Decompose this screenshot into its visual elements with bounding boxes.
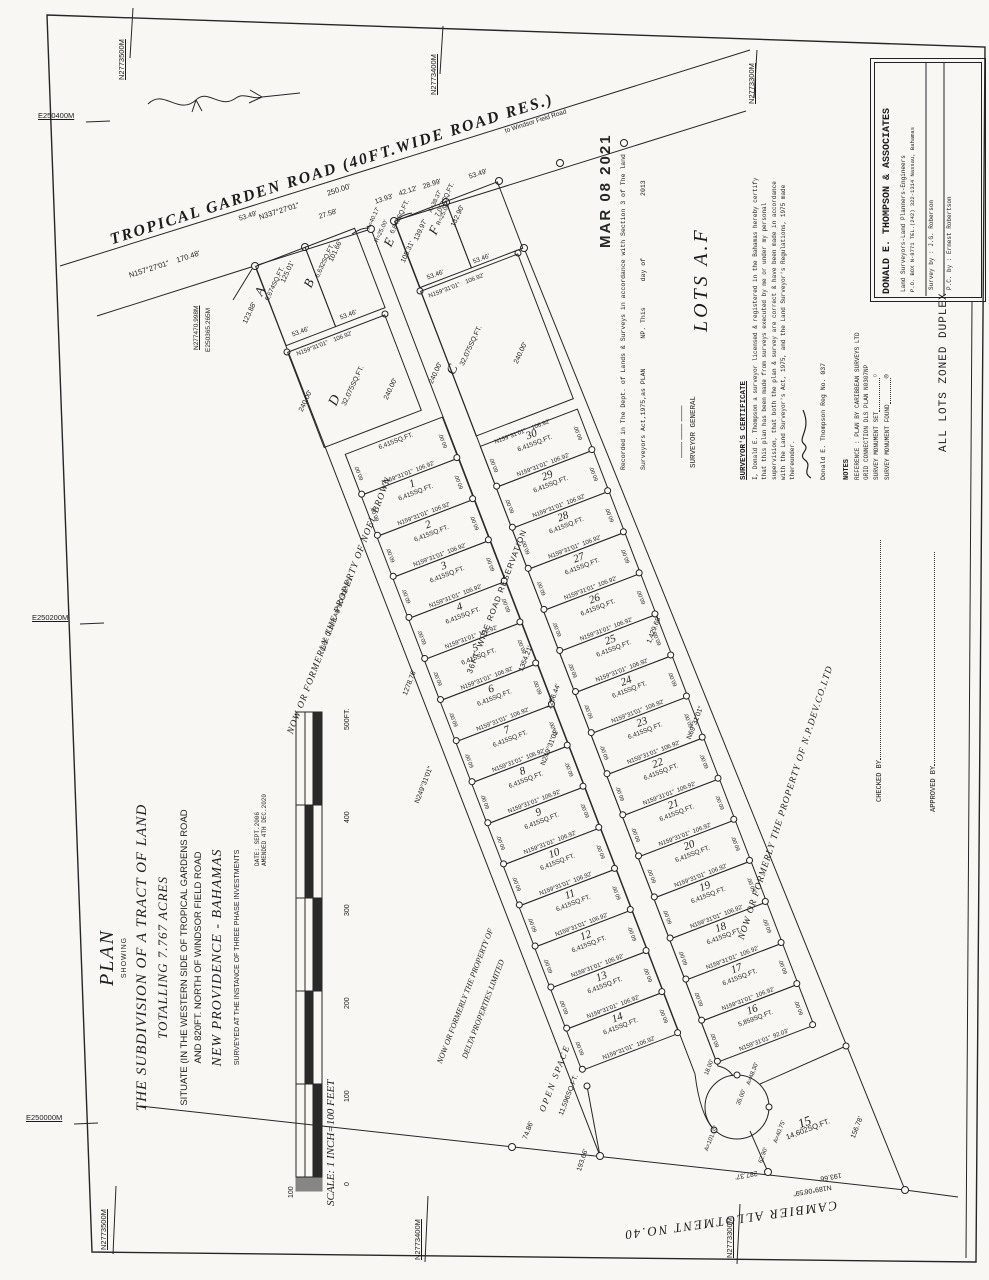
note-grid-connection: GRID CONNECTION DLS PLAN N0307NP — [863, 275, 870, 480]
surveyors-certificate: SURVEYOR'S CERTIFICATE I, Donald E. Thom… — [740, 168, 827, 480]
firm-address: P.O. BOX N-8771 TEL.(242) 322-1314 Nassa… — [910, 127, 916, 292]
monument-found-icon: ◎ — [882, 374, 891, 378]
signature-icon — [799, 406, 815, 480]
certificate-signer: Donald E. Thompson Reg No. 037 — [820, 168, 827, 480]
title-dates: DATE: SEPT.2006 AMENDED 4TH DEC.2020 — [254, 766, 268, 866]
grid-label: E250200M — [32, 614, 68, 622]
scale-tick: 100 — [344, 1090, 352, 1102]
title-block: PLAN SHOWING THE SUBDIVISION OF A TRACT … — [96, 765, 241, 1150]
grid-label: N2773300M — [748, 63, 756, 104]
title-line: NEW PROVIDENCE - BAHAMAS — [210, 765, 226, 1150]
open-space-edge — [587, 1086, 600, 1156]
recorded-text: NP. This — [640, 307, 647, 338]
title-line: AND 820FT. NORTH OF WINDSOR FIELD ROAD — [193, 765, 204, 1150]
dotted-leader — [874, 540, 881, 760]
scale-tick: 300 — [344, 904, 352, 916]
scale-tick: 200 — [344, 997, 352, 1009]
signature-dashes: —— —— —— — [678, 406, 687, 458]
surveyor-general-label: SURVEYOR GENERAL — [690, 396, 698, 468]
approved-by-label: APPROVED BY — [930, 766, 938, 812]
recorded-line-1: Recorded in The Dept. of Lands & Surveys… — [620, 154, 627, 470]
dotted-leader — [928, 552, 935, 766]
scale-text: SCALE: 1 INCH=100 FEET — [325, 1080, 337, 1206]
grid-label: N2773400M — [414, 1219, 422, 1260]
legend-label: SURVEY MONUMENT FOUND — [884, 404, 891, 480]
note-monument-found: SURVEY MONUMENT FOUND◎ — [882, 275, 891, 480]
grid-label: N2773500M — [100, 1209, 108, 1250]
survey-date: DATE: SEPT.2006 — [254, 766, 261, 866]
note-reference: REFERENCE : PLAN BY CARIBBEAN SURVEYS LT… — [854, 275, 861, 480]
north-arrow-barbs — [192, 90, 262, 112]
grid-label: N2773500M — [118, 39, 126, 80]
handwritten-note: LOTS A.F — [690, 227, 712, 332]
scanned-survey-plan: 6,415SQ.FT.N159°31'01" 106.92'60.00'60.0… — [0, 0, 989, 1280]
grid-label: N2773400M — [430, 54, 438, 95]
corner-leader-line — [233, 269, 252, 300]
note-monument-set: SURVEY MONUMENT SET○ — [872, 275, 880, 480]
grid-label: E250000M — [26, 1114, 62, 1122]
recorded-line-2: Surveyors Act,1975,as PLANNP. Thisday of… — [640, 180, 647, 470]
dotted-leader — [884, 378, 891, 404]
notes-block: NOTES REFERENCE : PLAN BY CARIBBEAN SURV… — [843, 275, 891, 480]
corner-coordinate-e: E250365.265M — [205, 308, 212, 352]
firm-survey-by: Survey by : J.G. Roberson — [929, 200, 936, 290]
title-line: SITUATE (IN THE WESTERN SIDE OF TROPICAL… — [179, 765, 190, 1150]
zoning-note: ALL LOTS ZONED DUPLEX — [938, 292, 950, 452]
checked-by-line: CHECKED BY — [874, 502, 884, 802]
firm-name: DONALD E. THOMPSON & ASSOCIATES — [882, 108, 893, 294]
firm-pc-by: P.C. by : Ernest Robertson — [947, 196, 954, 290]
certificate-heading: SURVEYOR'S CERTIFICATE — [740, 168, 748, 480]
recorded-year: 2013 — [640, 180, 647, 196]
margin-line — [966, 302, 972, 1258]
date-stamp: MAR 08 2021 — [598, 133, 615, 248]
certificate-body: I, Donald E. Thompson a surveyor license… — [751, 168, 797, 480]
scale-tick: 0 — [344, 1182, 352, 1186]
plan-subtitle: SHOWING — [121, 765, 128, 1150]
amended-date: AMENDED 4TH DEC.2020 — [261, 766, 268, 866]
approved-by-line: APPROVED BY — [928, 512, 938, 812]
north-arrow-icon — [148, 93, 300, 105]
scale-tick: 100 — [288, 1186, 296, 1198]
title-line: TOTALLING 7.767 ACRES — [155, 765, 171, 1150]
title-line: THE SUBDIVISION OF A TRACT OF LAND — [134, 765, 151, 1150]
dotted-leader — [873, 378, 880, 412]
monument-set-icon: ○ — [872, 373, 880, 377]
recorded-text: day of — [640, 258, 647, 281]
recorded-text: Surveyors Act,1975,as PLAN — [640, 369, 647, 470]
plan-title: PLAN — [96, 765, 119, 1150]
corner-coordinate-n: N277470.998M — [193, 306, 200, 350]
notes-heading: NOTES — [843, 275, 851, 480]
firm-descriptor: Land Surveyors-Land Planners-Engineers — [901, 155, 908, 292]
lot16-bottom-edge — [760, 1046, 846, 1084]
lot-side-length: 60.00' — [439, 433, 450, 449]
scale-tick: 400 — [344, 811, 352, 823]
scale-tick: 500FT. — [344, 709, 352, 730]
grid-label: E250400M — [38, 112, 74, 120]
title-line: SURVEYED AT THE INSTANCE OF THREE PHASE … — [234, 765, 241, 1150]
lot-side-length: 60.00' — [354, 465, 365, 481]
checked-by-label: CHECKED BY — [876, 760, 884, 802]
legend-label: SURVEY MONUMENT SET — [873, 412, 880, 480]
boundary-bottom — [140, 1106, 958, 1197]
